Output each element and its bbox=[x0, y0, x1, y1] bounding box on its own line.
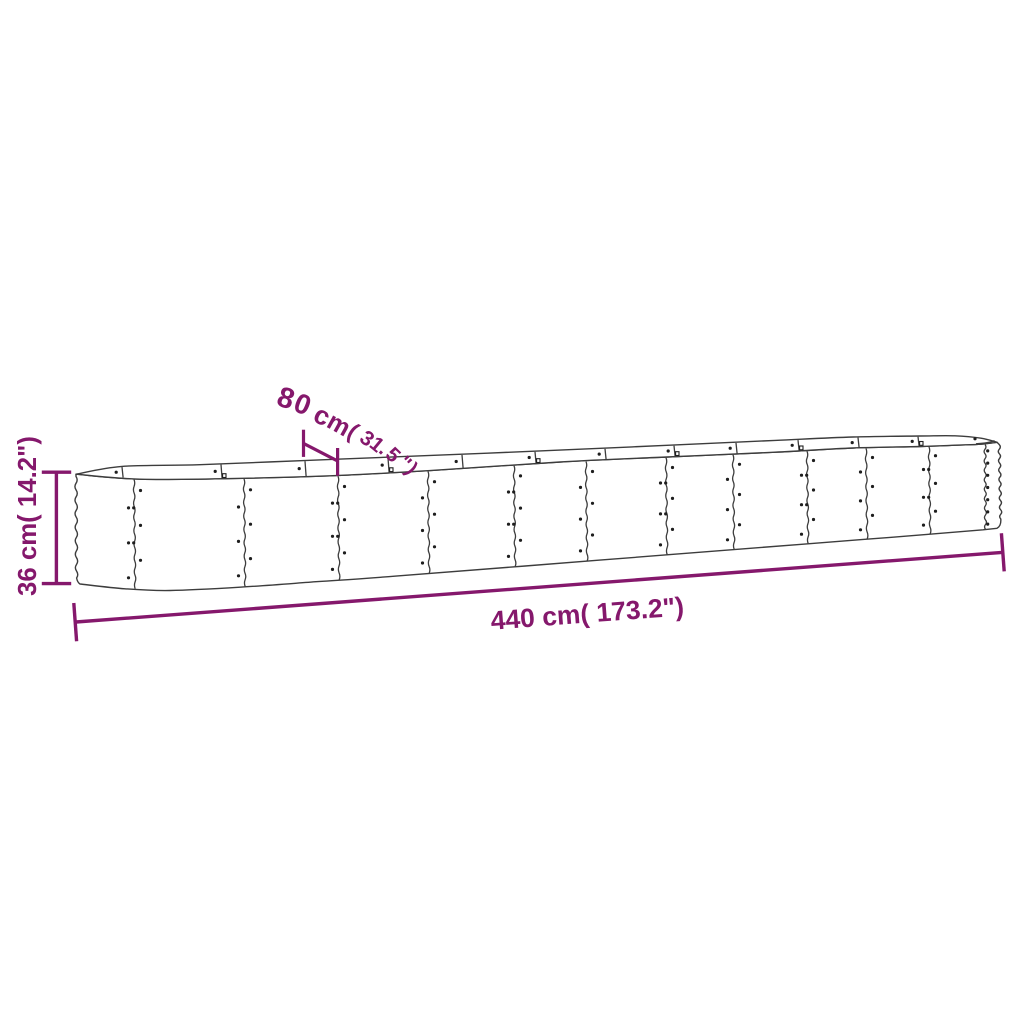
svg-text:36 cm( 14.2"): 36 cm( 14.2") bbox=[14, 436, 42, 596]
